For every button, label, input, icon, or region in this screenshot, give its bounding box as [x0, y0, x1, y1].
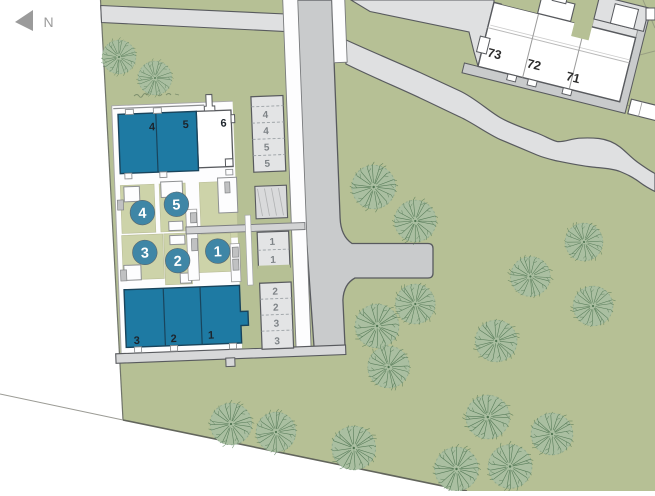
svg-text:2: 2 — [173, 254, 182, 270]
svg-text:4: 4 — [263, 126, 269, 137]
svg-text:1: 1 — [270, 255, 276, 266]
svg-text:5: 5 — [264, 159, 270, 170]
svg-text:2: 2 — [273, 303, 279, 314]
svg-text:4: 4 — [138, 206, 147, 222]
svg-text:3: 3 — [141, 245, 150, 261]
svg-text:3: 3 — [133, 335, 140, 347]
svg-text:2: 2 — [272, 287, 278, 298]
svg-text:3: 3 — [274, 336, 280, 347]
svg-text:4: 4 — [262, 110, 268, 121]
svg-text:1: 1 — [269, 237, 275, 248]
svg-text:3: 3 — [273, 319, 279, 330]
svg-text:6: 6 — [220, 118, 227, 130]
svg-text:1: 1 — [208, 330, 215, 342]
svg-text:N: N — [44, 14, 54, 30]
svg-text:5: 5 — [182, 119, 189, 131]
svg-text:5: 5 — [172, 197, 181, 213]
svg-text:2: 2 — [170, 333, 177, 345]
svg-text:1: 1 — [213, 244, 222, 260]
svg-text:5: 5 — [264, 142, 270, 153]
